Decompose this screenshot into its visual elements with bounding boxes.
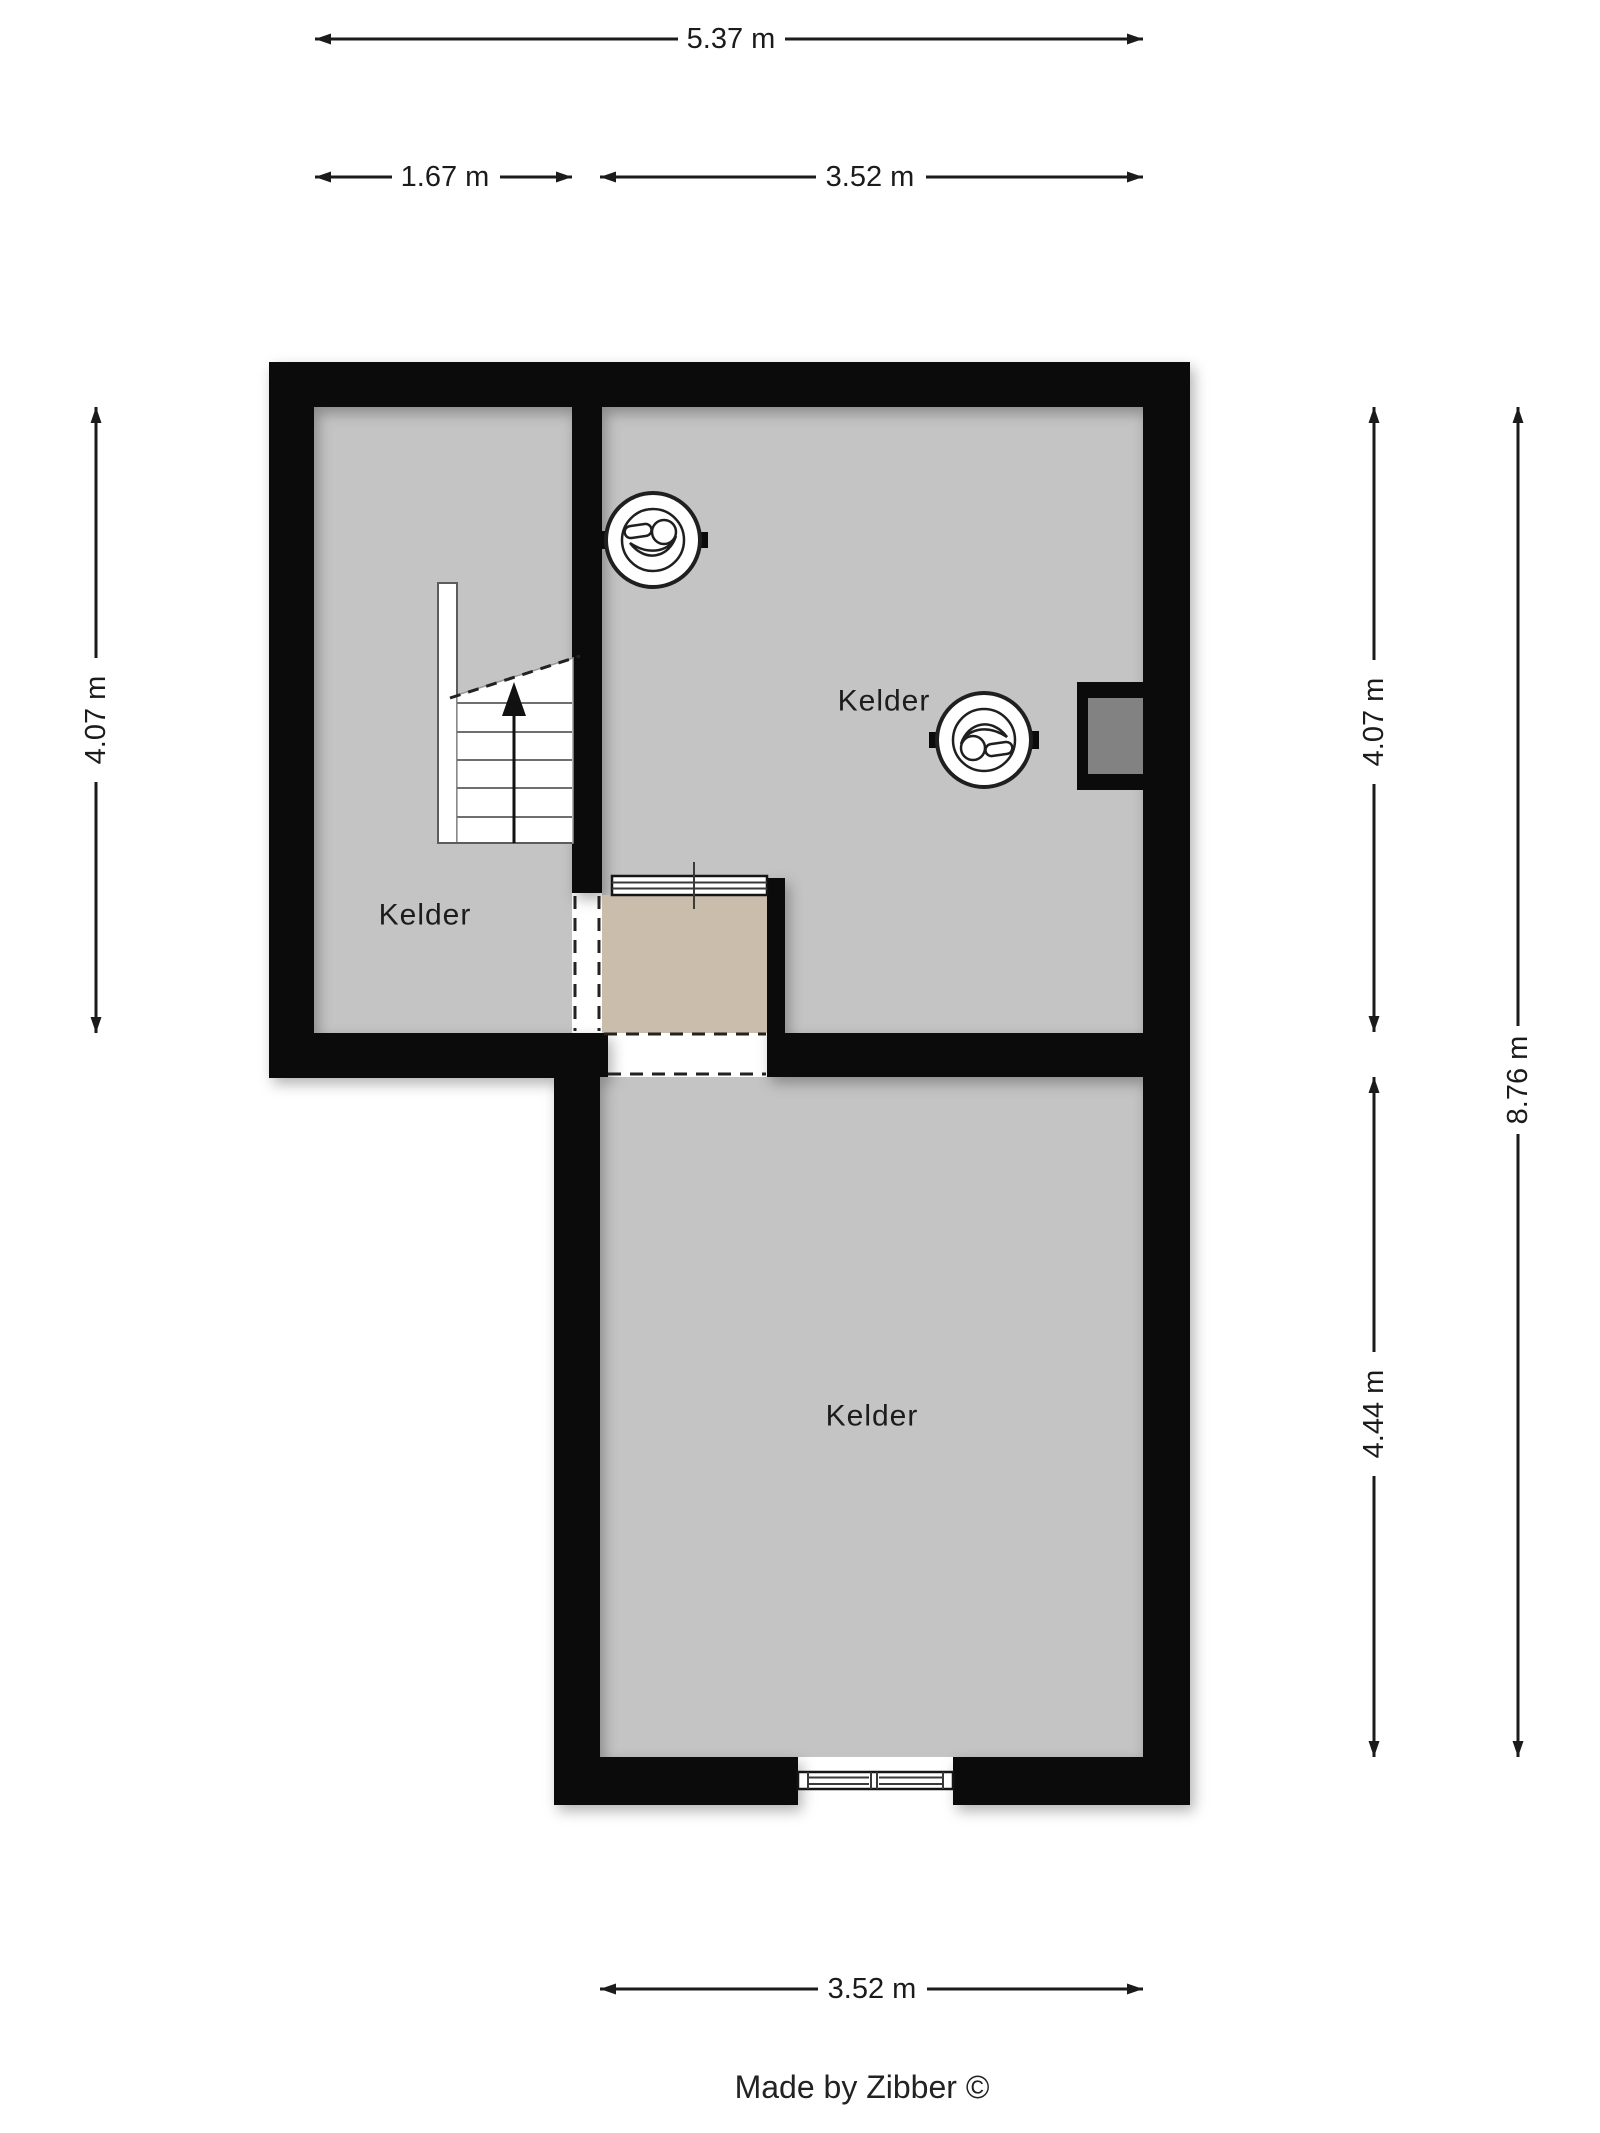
room-label-left: Kelder	[379, 899, 472, 932]
dim-right-upper-height: 4.07 m	[1358, 407, 1390, 1032]
svg-text:8.76 m: 8.76 m	[1502, 1036, 1534, 1125]
wall-niche	[1077, 682, 1143, 790]
dim-bottom-width: 3.52 m	[600, 1973, 1143, 2005]
svg-text:5.37 m: 5.37 m	[687, 23, 776, 55]
svg-text:1.67 m: 1.67 m	[401, 161, 490, 193]
dim-top-total: 5.37 m	[315, 23, 1143, 55]
dim-right-total-height: 8.76 m	[1502, 407, 1534, 1757]
niche-fill	[1088, 698, 1143, 774]
floorplan-svg: Kelder Kelder Kelder 5.37 m 1.67 m 3.52 …	[0, 0, 1600, 2133]
svg-text:3.52 m: 3.52 m	[828, 1973, 917, 2005]
floorplan-page: Kelder Kelder Kelder 5.37 m 1.67 m 3.52 …	[0, 0, 1600, 2133]
dim-left-height: 4.07 m	[80, 407, 112, 1033]
window-icon-bottom	[798, 1772, 953, 1789]
vestibule-platform	[602, 895, 767, 1033]
dim-top-right-segment: 3.52 m	[600, 161, 1143, 193]
stair-stringer	[438, 583, 457, 843]
svg-text:4.07 m: 4.07 m	[1358, 678, 1390, 767]
svg-text:4.07 m: 4.07 m	[80, 676, 112, 765]
credit-text: Made by Zibber ©	[735, 2069, 990, 2105]
dim-top-left-segment: 1.67 m	[315, 161, 572, 193]
room-label-upper: Kelder	[838, 685, 931, 718]
passage-opening-lower	[608, 1033, 767, 1077]
svg-text:3.52 m: 3.52 m	[826, 161, 915, 193]
wall-vestibule-right	[767, 878, 785, 1033]
svg-text:4.44 m: 4.44 m	[1358, 1370, 1390, 1459]
dim-right-lower-height: 4.44 m	[1358, 1077, 1390, 1757]
room-label-lower: Kelder	[826, 1400, 919, 1433]
